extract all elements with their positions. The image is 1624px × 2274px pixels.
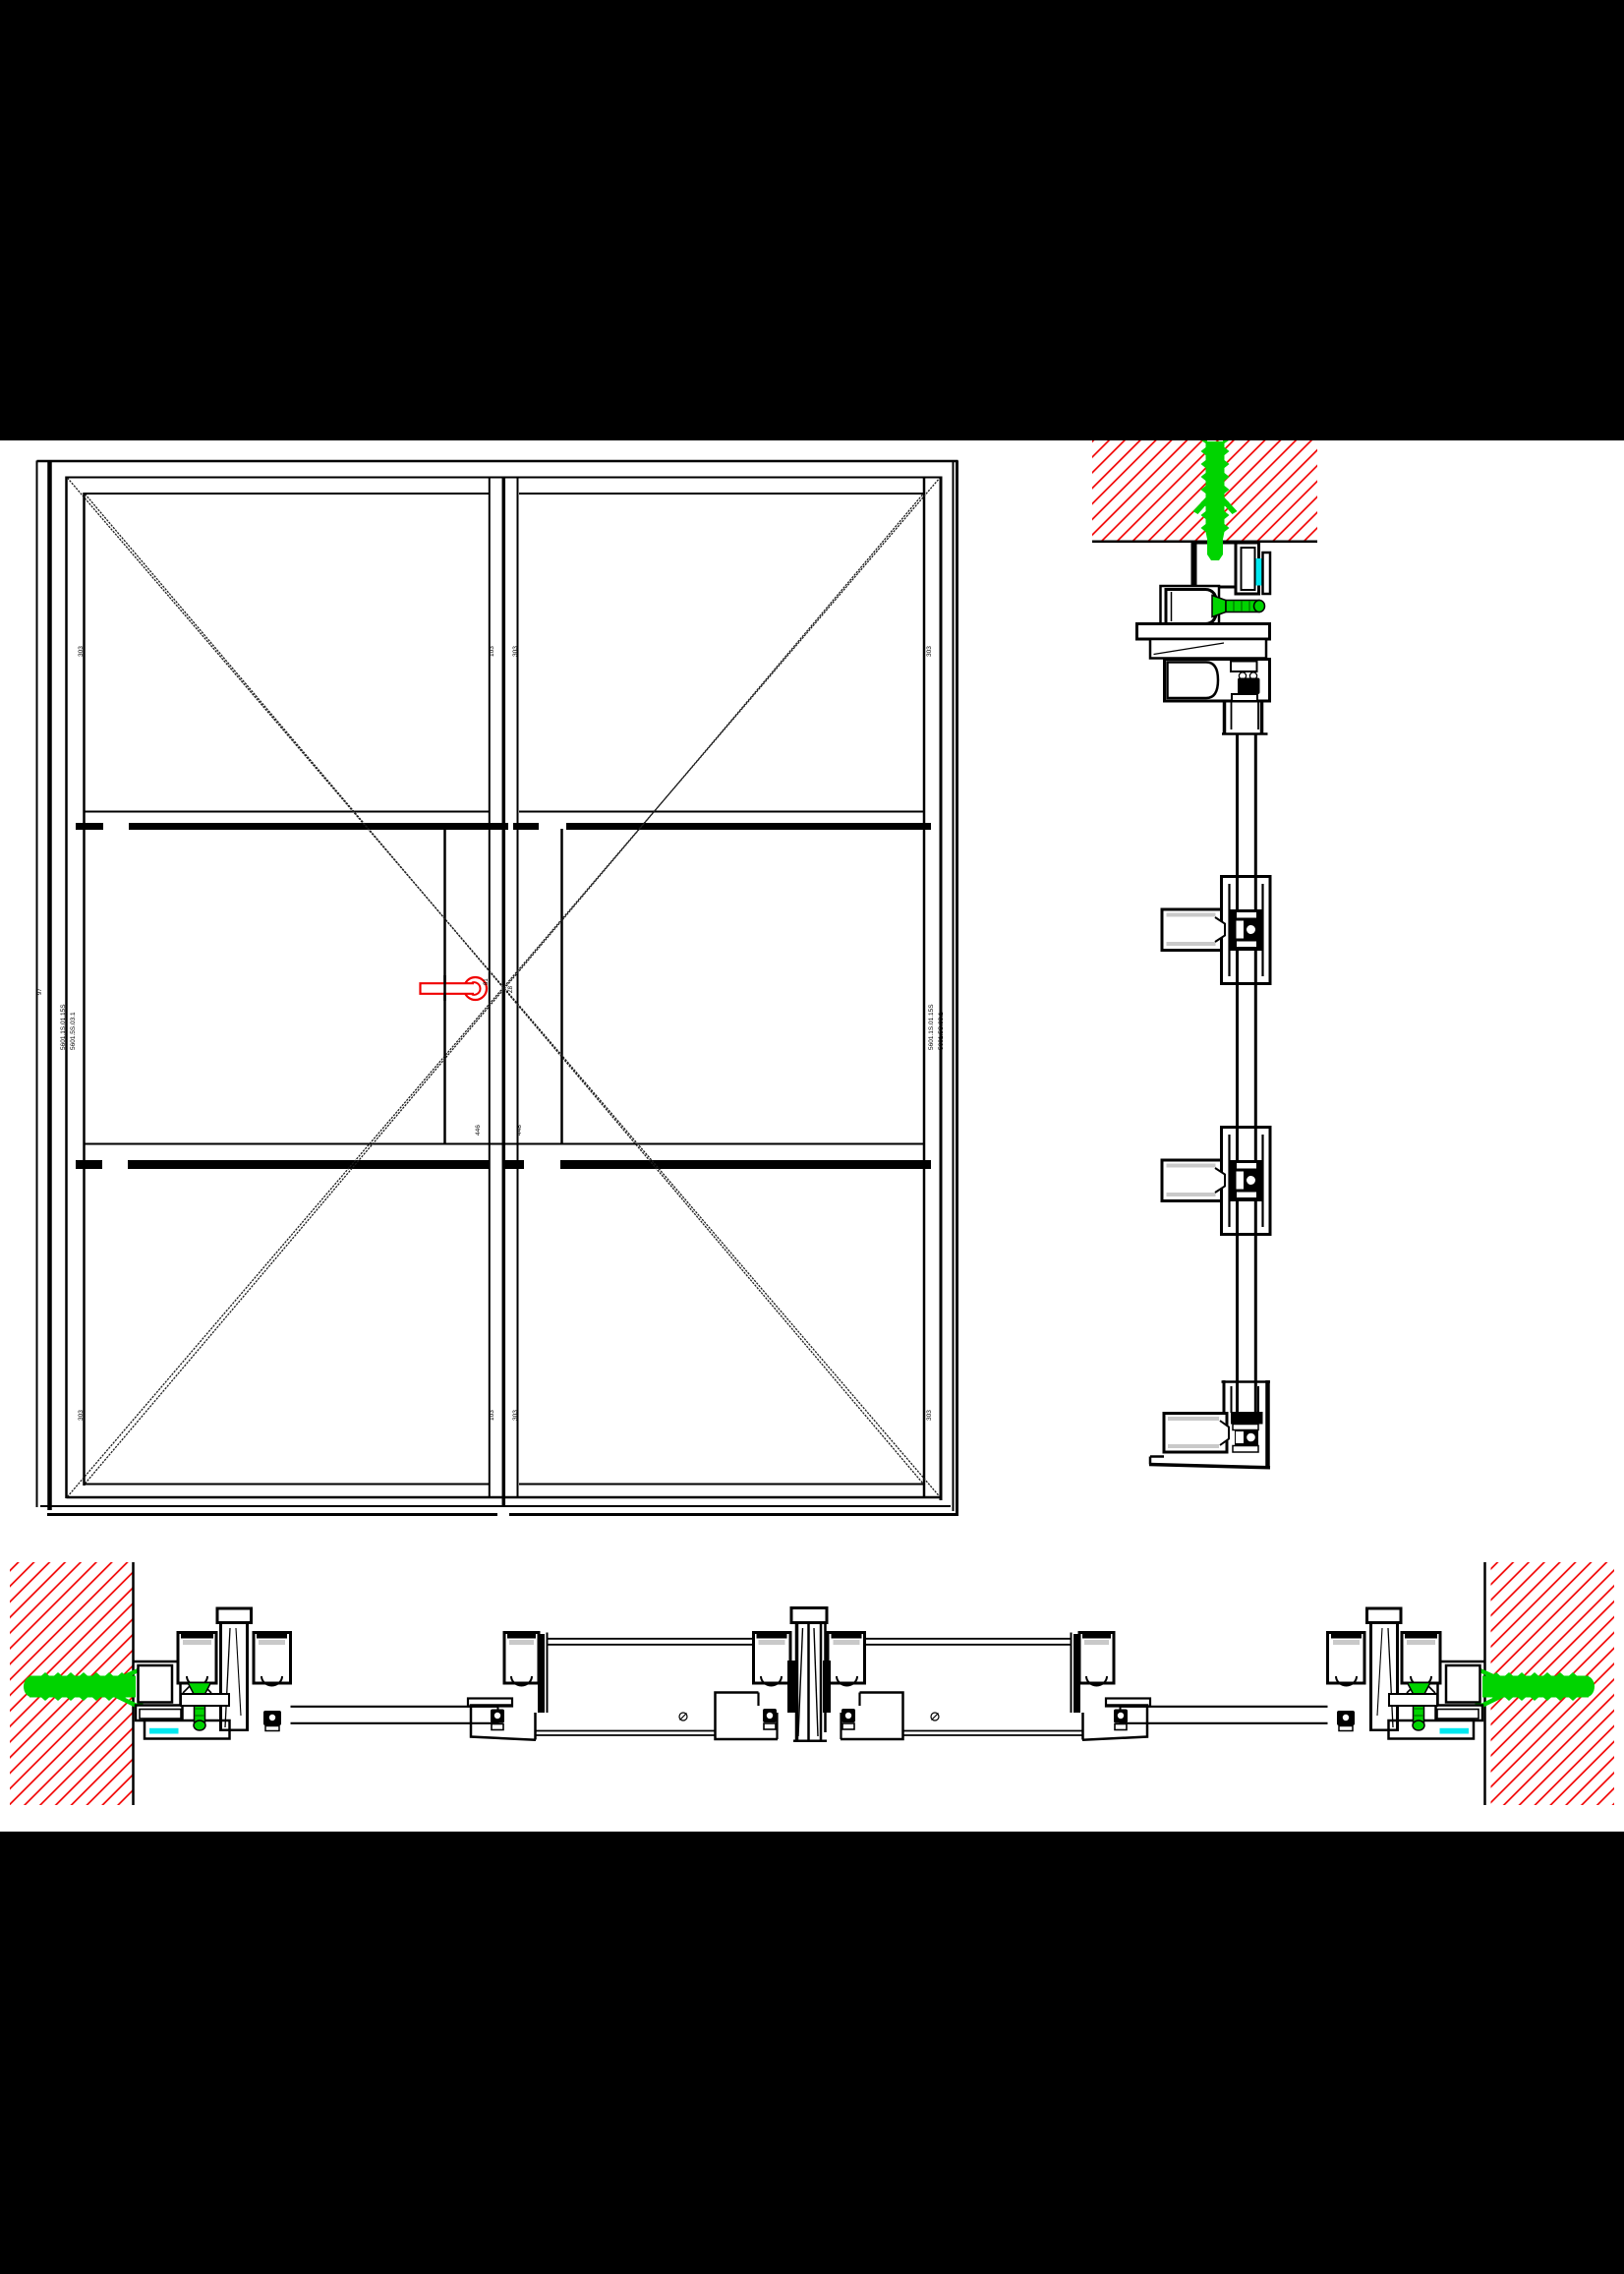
svg-text:97: 97	[37, 988, 43, 995]
svg-text:448: 448	[516, 1125, 523, 1136]
svg-text:303: 303	[512, 646, 519, 657]
svg-text:303: 303	[512, 1410, 519, 1421]
svg-text:Z8: Z8	[508, 985, 514, 993]
svg-text:5601.1S.01.15S: 5601.1S.01.15S	[60, 1004, 67, 1050]
svg-text:5601.5S.03.1: 5601.5S.03.1	[938, 1012, 945, 1050]
svg-text:103: 103	[489, 1410, 495, 1421]
svg-text:303: 303	[78, 1410, 85, 1421]
svg-text:446: 446	[475, 1125, 482, 1136]
svg-text:303: 303	[926, 1410, 933, 1421]
svg-text:5601.5S.03.1: 5601.5S.03.1	[70, 1012, 77, 1050]
svg-text:103: 103	[489, 646, 495, 657]
svg-text:303: 303	[926, 646, 933, 657]
svg-text:81: 81	[484, 978, 490, 985]
svg-text:5601.1S.01.15S: 5601.1S.01.15S	[928, 1004, 935, 1050]
svg-text:303: 303	[78, 646, 85, 657]
